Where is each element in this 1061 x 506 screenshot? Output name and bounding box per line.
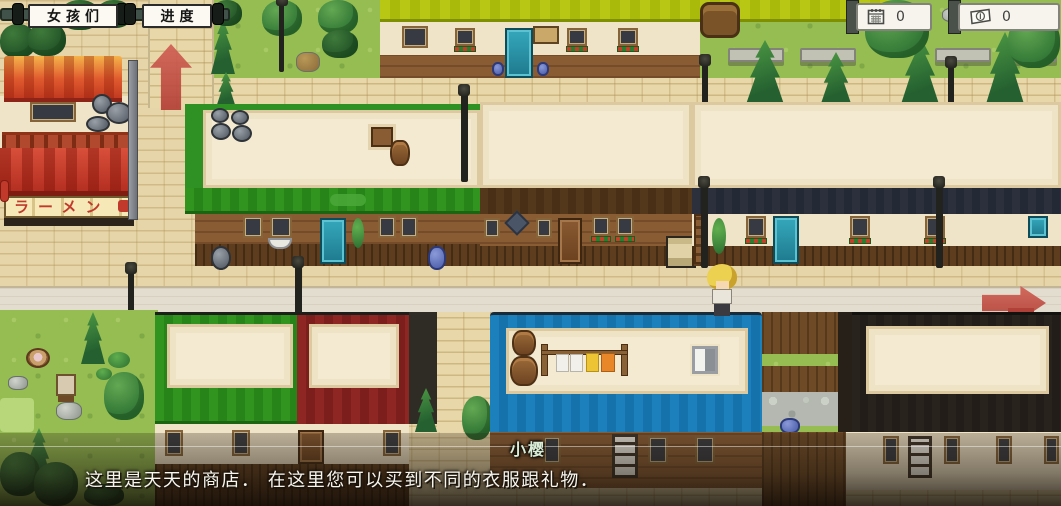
money-icon	[968, 8, 992, 26]
lamppost	[295, 266, 302, 314]
rooftop-terrace	[692, 102, 1061, 188]
rock	[56, 402, 82, 420]
machinery	[86, 116, 110, 132]
rock	[296, 52, 320, 72]
flower-box	[566, 46, 588, 52]
window	[30, 102, 76, 122]
barrel	[510, 356, 538, 386]
hud-top-right: 0 0	[840, 0, 1061, 36]
sign-easel	[56, 374, 76, 396]
npc-body	[712, 289, 732, 304]
balcony-railing	[2, 132, 128, 148]
window	[536, 218, 552, 238]
girls-button-label: 女孩们	[47, 6, 104, 26]
window	[402, 26, 428, 48]
calendar-icon	[866, 7, 886, 27]
rooftop-terrace	[866, 326, 1049, 394]
plant	[712, 218, 726, 254]
day-counter-value: 0	[896, 9, 905, 25]
street-road	[0, 286, 1061, 314]
plant	[352, 218, 364, 248]
hanging-cloth-yellow	[586, 353, 599, 372]
game-screen: ラーメン	[0, 0, 1061, 506]
window	[616, 216, 634, 236]
flower-pot	[492, 62, 504, 76]
dark-pot	[211, 246, 231, 270]
fence-planks	[762, 366, 838, 392]
brown-door	[558, 218, 582, 264]
window	[243, 216, 263, 238]
ramen-shop-sign: ラーメン	[4, 196, 134, 218]
rooftop-window	[692, 346, 718, 374]
bench	[728, 48, 784, 62]
bench	[935, 48, 991, 62]
sign-post	[12, 3, 24, 25]
window	[746, 216, 766, 238]
teal-door	[773, 216, 799, 264]
backpack-prop	[700, 2, 740, 38]
shop-base	[4, 218, 134, 226]
teal-window	[1028, 216, 1048, 238]
sign-post	[212, 3, 224, 25]
npc-legs	[714, 304, 730, 316]
roof-mark	[330, 194, 366, 206]
pot	[211, 123, 231, 140]
tree	[318, 0, 358, 34]
flower-box	[617, 46, 639, 52]
facade-slats	[480, 246, 692, 266]
dark-divider	[838, 312, 852, 432]
girls-button[interactable]: 女孩们	[28, 4, 118, 28]
hanging-cloth-white	[556, 354, 569, 372]
pot	[231, 110, 249, 125]
flower-box	[849, 238, 871, 244]
window	[455, 28, 475, 46]
yellow-roof-building	[380, 0, 700, 78]
metal-pole	[128, 60, 138, 220]
day-counter: 0	[856, 3, 932, 31]
flower-box	[745, 238, 767, 244]
flower-box	[454, 46, 476, 52]
pot	[211, 108, 229, 123]
teal-door	[505, 28, 533, 78]
hanging-cloth-white	[570, 354, 583, 372]
ramen-sign-text: ラーメン	[14, 198, 109, 216]
window	[567, 28, 587, 46]
lamppost	[279, 4, 284, 72]
barrel	[512, 330, 536, 356]
npc-face	[716, 281, 729, 289]
pot	[232, 125, 252, 142]
progress-button-label: 进度	[161, 6, 199, 26]
stone-path	[762, 392, 838, 426]
awning-large	[0, 148, 136, 196]
yard-grass	[762, 354, 838, 366]
facade-wainscot	[692, 246, 1061, 266]
window	[618, 28, 638, 46]
rooftop-terrace	[309, 324, 399, 388]
window	[592, 216, 610, 236]
flower-box	[591, 236, 611, 242]
stump-table	[26, 348, 50, 368]
bench	[800, 48, 856, 62]
clothesline-post	[621, 344, 628, 376]
window	[850, 216, 870, 238]
red-lantern	[0, 180, 9, 202]
progress-button[interactable]: 进度	[142, 4, 212, 28]
roof-fascia-brown	[480, 188, 692, 214]
window	[378, 216, 396, 238]
npc-character	[707, 264, 737, 316]
rooftop-terrace	[480, 102, 692, 188]
ramen-shop: ラーメン	[0, 54, 140, 216]
bush	[108, 352, 130, 368]
blue-vase	[428, 246, 446, 270]
hanging-cloth-orange	[601, 353, 615, 372]
flower-pot	[537, 62, 549, 76]
hud-top-left: 女孩们 进度	[0, 0, 240, 32]
rooftop-terrace	[167, 324, 293, 388]
clothesline-post	[541, 344, 548, 376]
speaker-name: 小樱	[510, 436, 546, 460]
lamppost	[936, 186, 943, 268]
tree	[104, 372, 144, 420]
flower-box	[615, 236, 635, 242]
rooftop-terrace-green	[185, 104, 480, 188]
shop-picture-sign	[533, 26, 559, 44]
dialogue-window[interactable]: 小樱 这里是天天的商店． 在这里您可以买到不同的衣服跟礼物．	[0, 433, 1061, 506]
window	[484, 218, 500, 238]
money-counter: 0	[958, 3, 1060, 31]
window	[270, 216, 292, 238]
teal-door	[320, 218, 346, 264]
town-map[interactable]: ラーメン	[0, 0, 1061, 506]
money-counter-value: 0	[1002, 9, 1011, 25]
window	[400, 216, 418, 238]
lamppost	[701, 186, 708, 268]
sign-post	[124, 3, 136, 25]
rock	[8, 376, 28, 390]
barrel	[390, 140, 410, 166]
fence-planks	[762, 312, 838, 354]
dialogue-text: 这里是天天的商店． 在这里您可以买到不同的衣服跟礼物．	[85, 466, 599, 492]
tree	[322, 30, 358, 58]
light-grass-patch	[0, 398, 34, 432]
lamppost	[461, 94, 468, 182]
roof-fascia-navy	[692, 188, 1061, 214]
